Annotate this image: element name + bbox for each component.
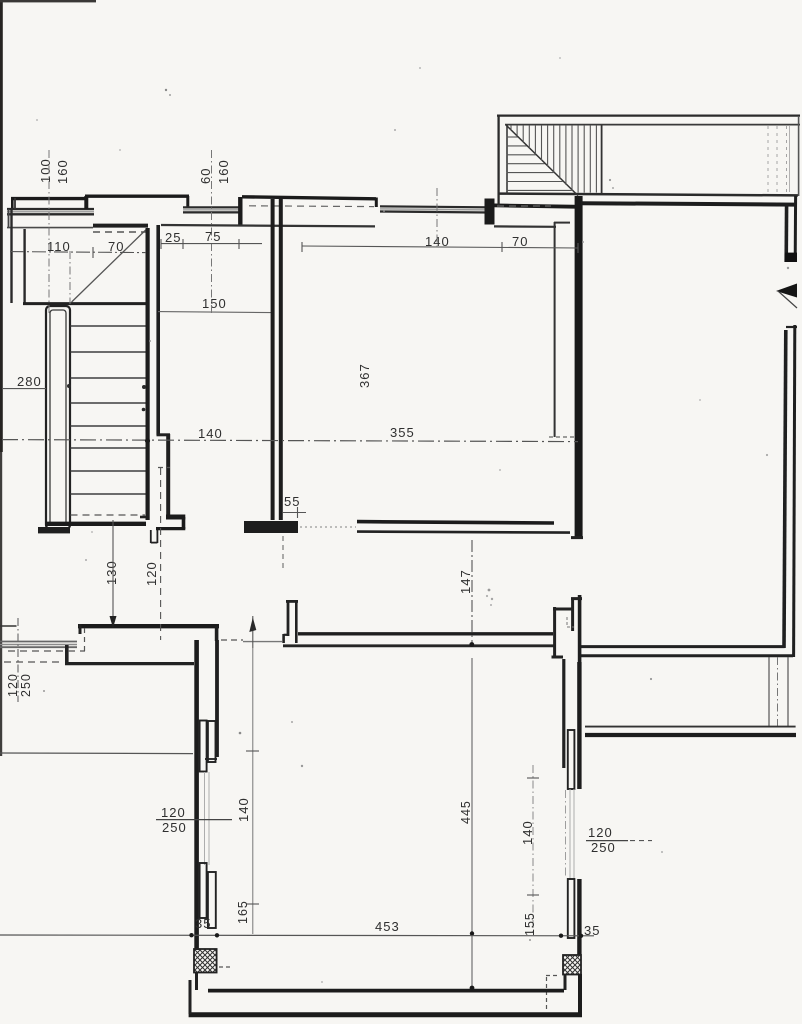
svg-text:147: 147 bbox=[458, 569, 473, 594]
svg-text:280: 280 bbox=[17, 374, 42, 389]
svg-text:150: 150 bbox=[202, 296, 227, 311]
svg-text:160: 160 bbox=[55, 159, 70, 184]
svg-text:453: 453 bbox=[375, 919, 400, 934]
svg-text:25: 25 bbox=[165, 230, 181, 245]
svg-text:140: 140 bbox=[236, 797, 251, 822]
svg-text:120: 120 bbox=[161, 805, 186, 820]
svg-text:140: 140 bbox=[198, 426, 223, 441]
svg-text:445: 445 bbox=[459, 800, 473, 824]
svg-text:120: 120 bbox=[588, 825, 613, 840]
svg-text:110: 110 bbox=[47, 239, 71, 254]
svg-text:55: 55 bbox=[284, 494, 300, 509]
svg-text:165: 165 bbox=[236, 900, 250, 924]
svg-text:160: 160 bbox=[216, 159, 231, 184]
svg-text:250: 250 bbox=[162, 820, 187, 835]
svg-text:35: 35 bbox=[195, 916, 211, 931]
svg-text:60: 60 bbox=[198, 168, 213, 184]
svg-text:120: 120 bbox=[6, 673, 20, 697]
svg-text:100: 100 bbox=[38, 158, 53, 183]
svg-text:367: 367 bbox=[357, 363, 372, 388]
svg-text:250: 250 bbox=[591, 840, 616, 855]
svg-text:250: 250 bbox=[19, 673, 33, 697]
svg-text:75: 75 bbox=[205, 229, 221, 244]
svg-text:155: 155 bbox=[523, 912, 537, 936]
svg-text:70: 70 bbox=[108, 239, 124, 254]
svg-text:130: 130 bbox=[104, 560, 119, 585]
svg-text:355: 355 bbox=[390, 425, 415, 440]
svg-text:120: 120 bbox=[144, 561, 159, 586]
svg-text:70: 70 bbox=[512, 234, 528, 249]
